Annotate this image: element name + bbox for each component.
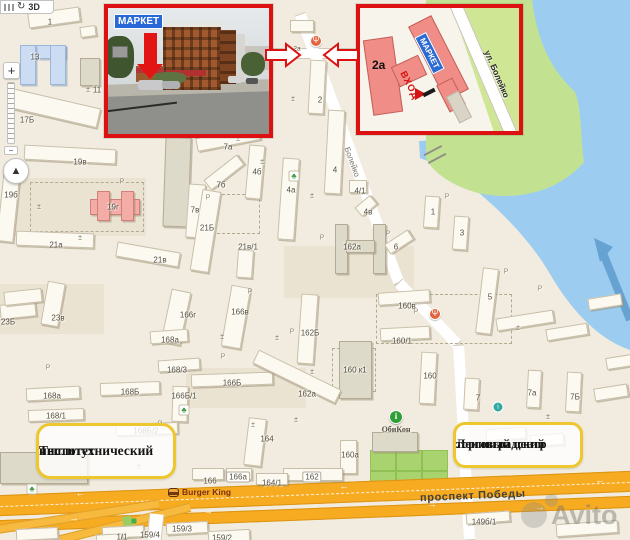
photo-roofline [163,23,221,27]
map-toolbar[interactable]: ↻ 3D [0,0,54,14]
map-label: 23Б [1,318,15,327]
monument-icon: ± [78,235,82,242]
road-direction-arrow: → [70,513,79,523]
photo-car [138,80,164,90]
link-arrow-right-icon [266,44,300,66]
map-label: 19б [4,191,17,200]
map-label: 7 [476,394,480,403]
watermark-text: Avito [551,500,618,531]
parking-icon: P [445,194,450,201]
parking-icon: P [504,269,509,276]
map-label: 17Б [20,116,34,125]
note-leningradsky: Ленинградский торговый центр [453,422,583,468]
map-label: 168/1 [46,412,66,421]
note-teplotekh: Теплотехнический институт [36,423,176,479]
photo-billboard [112,46,128,58]
burger-king-label: Burger King [182,487,231,497]
photo-inset: АБВМАРКЕТ [104,4,273,138]
food-icon[interactable]: Ψ [429,308,441,320]
map-label: 162а [343,243,361,252]
parking-icon: P [414,309,419,316]
zoom-out-button[interactable]: − [4,146,18,155]
parking-icon: P [386,231,391,238]
sign-market: МАРКЕТ [114,14,163,29]
monument-icon: ± [260,159,264,166]
monument-icon: ± [37,204,41,211]
poi-label: ОбиКон [382,424,411,435]
building [236,249,254,278]
map-label: 7б [216,181,225,190]
rotate-icon[interactable]: ↻ [17,1,25,13]
note-line: институт [39,443,95,460]
map-label: 21а [49,241,62,250]
dot-icon [132,519,137,524]
road-direction-arrow: → [204,506,213,516]
map-label: 162а [298,390,316,399]
map-label: 13 [31,53,40,62]
map-label: 21в/1 [238,243,258,252]
parking-icon: P [290,329,295,336]
zoom-in-button[interactable]: + [3,62,20,79]
building [80,58,100,86]
note-line: торговый центр [456,437,547,453]
monument-icon: ± [546,414,550,421]
map-label: 1 [431,208,435,217]
parking-icon: P [538,286,543,293]
building [372,432,418,452]
road-direction-arrow: ← [340,481,349,491]
parking-icon: P [221,354,226,361]
building [290,20,314,32]
ruler-icon[interactable] [4,4,14,11]
map-label: 166г [180,311,196,320]
map-label: 168а [161,336,179,345]
map-label: 1 [48,18,52,27]
map-label: 160 к1 [343,366,367,375]
monument-icon: ± [275,335,279,342]
map-label: 21в [153,256,166,265]
map-label: 7в [191,206,200,215]
plan-building-no: 2а [372,58,385,72]
red-arrow-down [144,33,157,65]
road-direction-arrow: ← [596,475,605,485]
photo-trees-right [241,52,265,76]
compass-control[interactable]: ▲ [3,158,29,184]
burger-icon [168,488,179,497]
photo-car [228,76,242,83]
plan-inset: ул. Болейко 2а АБВ МАРКЕТ ВХОД [356,4,523,135]
map-label: 21Б [200,224,214,233]
map-label: 1/1 [116,533,127,540]
map-label: 4б [252,168,261,177]
parking-icon: P [248,289,253,296]
info-icon[interactable]: iОбиКон [389,410,403,424]
building [16,527,59,540]
map-label: 166в [231,308,249,317]
tree-icon: ♣ [27,484,38,495]
map-label: 160а [341,451,359,460]
map-label: 5 [488,293,492,302]
parking-icon: P [206,195,211,202]
map-label: 11 [93,86,101,95]
map-label: 19в [73,158,86,167]
map-label: 7Б [570,393,580,402]
link-arrows [264,42,360,68]
map-label: 159/2 [212,534,232,540]
tree-icon: ♣ [289,171,300,182]
building [20,45,36,85]
building [50,45,66,85]
map-label: 4в [364,208,373,217]
map-label: 164 [260,435,273,444]
map-label: 2 [318,96,322,105]
map-label: 159/4 [140,531,160,540]
teal-icon[interactable]: i [493,402,504,413]
road-direction-arrow: ← [76,488,85,498]
parking-icon: P [46,365,51,372]
map-label: 160 [423,372,436,381]
view-3d-button[interactable]: 3D [28,1,40,13]
monument-icon: ± [310,369,314,376]
map-label: 4а [287,186,296,195]
monument-icon: ± [220,334,224,341]
map-label: 23в [51,314,64,323]
map-label: 162Б [301,329,320,338]
monument-icon: ± [251,422,255,429]
building [121,191,134,221]
map-label: 7а [528,389,537,398]
photo-car [246,78,258,84]
map-label: 168а [43,392,61,401]
zoom-slider[interactable] [7,82,15,144]
map-label: 4 [333,166,337,175]
map-label: 168Б [121,388,140,397]
map-label: 164/1 [262,479,282,488]
map-label: 166Б/1 [171,392,196,401]
photo-car [162,81,180,89]
map-label: 160/1 [392,337,412,346]
map-label: 166а [226,472,250,483]
map-label: 168/3 [167,366,187,375]
tree-icon: ♣ [179,405,190,416]
map-label: 7а [224,143,233,152]
monument-icon: ± [310,193,314,200]
watermark-circle [521,502,547,528]
parking-icon: P [320,235,325,242]
link-arrow-left-icon [324,44,358,66]
monument-icon: ± [291,96,295,103]
building [79,25,96,38]
map-label: 6 [394,243,398,252]
monument-icon: ± [516,325,520,332]
map-label: 149б/1 [472,518,497,527]
map-label: 19г [107,203,119,212]
red-arrow-down-head [137,64,163,79]
map-label: 162 [302,472,321,483]
map-viewport[interactable]: 1131117Б19в19б19г21а21в7в7а7б4б4а422а4/1… [0,0,630,540]
map-label: 166 [203,477,216,486]
map-label: 166Б [223,379,242,388]
map-label: 4/1 [354,187,365,196]
map-label: 159/3 [172,525,192,534]
parking-icon: P [120,179,125,186]
map-label: 3 [460,229,464,238]
monument-icon: ± [86,87,90,94]
monument-icon: ± [294,417,298,424]
